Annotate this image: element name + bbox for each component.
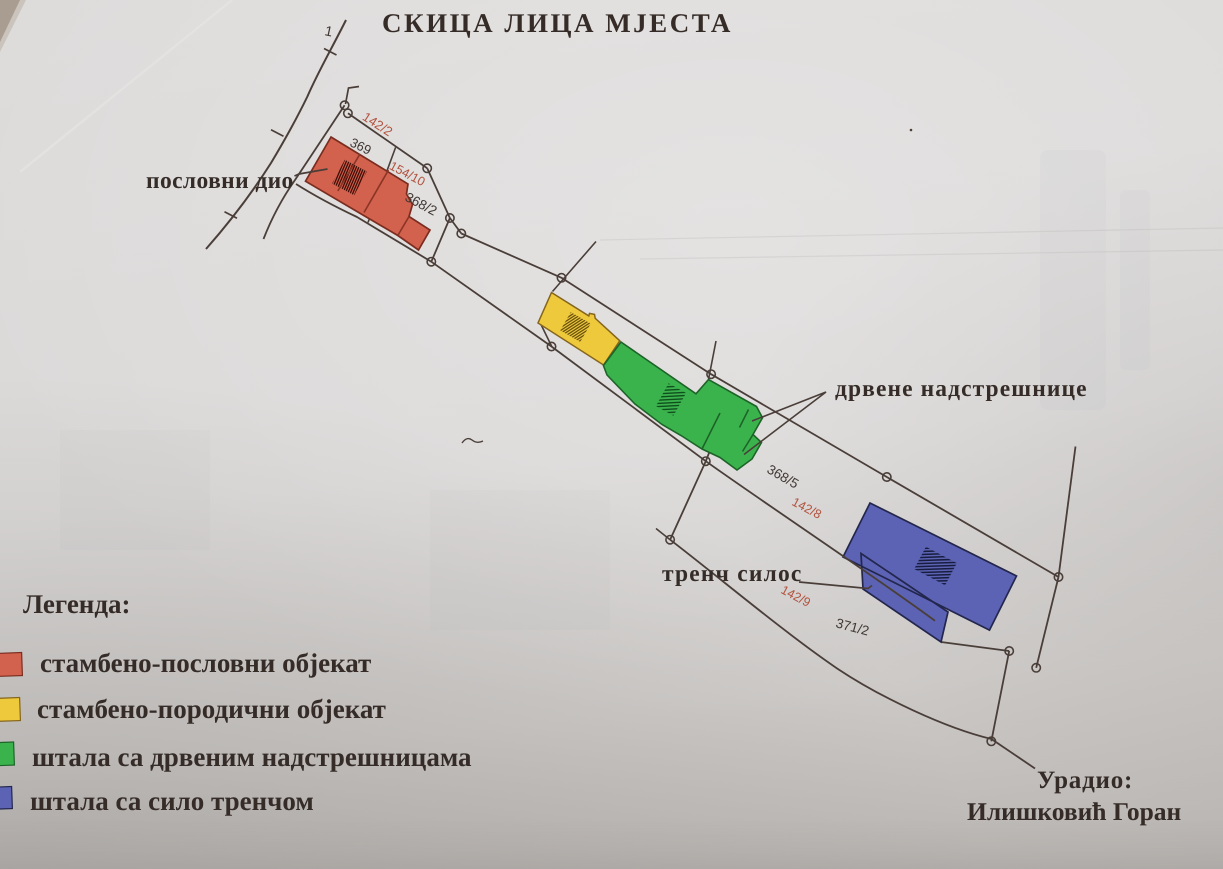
svg-text:368/5: 368/5 [765,462,802,492]
svg-text:Урадио:: Урадио: [1037,767,1133,794]
svg-text:штала са сило тренчом: штала са сило тренчом [30,786,314,816]
svg-text:1: 1 [323,22,334,39]
svg-text:дрвене надстрешнице: дрвене надстрешнице [835,376,1088,402]
svg-text:пословни дио: пословни дио [146,168,294,194]
svg-text:142/8: 142/8 [790,495,824,522]
svg-text:371/2: 371/2 [834,615,871,638]
svg-text:СКИЦА ЛИЦА МЈЕСТА: СКИЦА ЛИЦА МЈЕСТА [382,8,733,38]
svg-text:стамбено-пословни објекат: стамбено-пословни објекат [40,648,371,678]
svg-text:Легенда:: Легенда: [23,589,131,619]
svg-text:Илишковић Горан: Илишковић Горан [967,797,1182,826]
svg-text:штала са дрвеним надстрешницам: штала са дрвеним надстрешницама [32,742,472,772]
svg-text:стамбено-породични објекат: стамбено-породични објекат [37,694,386,724]
svg-text:тренч силос: тренч силос [662,561,803,587]
